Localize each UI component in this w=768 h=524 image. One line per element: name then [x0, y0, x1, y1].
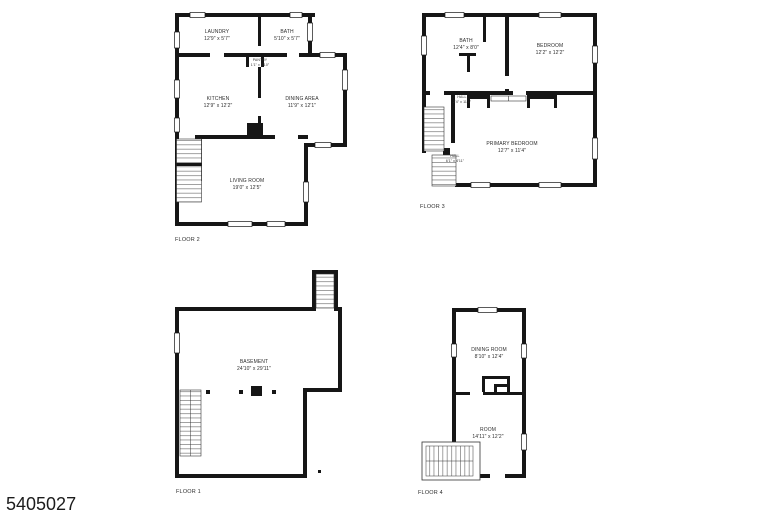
room-name: BATH: [453, 38, 479, 45]
room-dims: 12'9" x 5'7": [204, 36, 230, 43]
room-label-living-room: LIVING ROOM 19'0" x 12'5": [230, 178, 264, 192]
room-dims: 11'9" x 12'1": [285, 103, 318, 110]
floor-2-caption: FLOOR 2: [175, 237, 200, 243]
room-label-bedroom: BEDROOM 12'2" x 12'2": [536, 43, 565, 57]
room-label-bath: BATH 12'4" x 8'0": [453, 38, 479, 52]
floor-3-drawing: [418, 8, 603, 213]
room-label-kitchen: KITCHEN 12'9" x 12'2": [204, 96, 233, 110]
stairs: [177, 139, 202, 202]
room-dims: 6'1" x 4'11": [446, 159, 464, 164]
room-dims: 24'10" x 29'11": [237, 366, 271, 373]
room-label-dining-room: DINING ROOM 8'10" x 12'4": [471, 347, 507, 361]
room-name: DINING ROOM: [471, 347, 507, 354]
room-label-hall-upper: HALL 2'4" x 11'1": [453, 95, 471, 104]
room-dims: 1'1" x 1'10": [251, 63, 269, 68]
room-dims: 5'10" x 5'7": [274, 36, 300, 43]
listing-id: 5405027: [6, 494, 76, 515]
room-label-hall-lower: HALL 6'1" x 4'11": [446, 154, 464, 163]
room-dims: 12'7" x 11'4": [486, 148, 537, 155]
room-name: PANTRY: [251, 58, 269, 63]
room-name: ROOM: [472, 427, 503, 434]
room-label-basement: BASEMENT 24'10" x 29'11": [237, 359, 271, 373]
room-label-bath: BATH 5'10" x 5'7": [274, 29, 300, 43]
room-dims: 2'4" x 11'1": [453, 100, 471, 105]
floor-4-drawing: [416, 288, 561, 503]
room-name: KITCHEN: [204, 96, 233, 103]
room-dims: 19'0" x 12'5": [230, 185, 264, 192]
room-name: LIVING ROOM: [230, 178, 264, 185]
room-name: LAUNDRY: [204, 29, 230, 36]
room-dims: 12'9" x 12'2": [204, 103, 233, 110]
room-name: BASEMENT: [237, 359, 271, 366]
floor-1-drawing: [168, 268, 353, 503]
room-dims: 12'4" x 8'0": [453, 45, 479, 52]
room-label-dining-area: DINING AREA 11'9" x 12'1": [285, 96, 318, 110]
room-dims: 12'2" x 12'2": [536, 50, 565, 57]
room-label-room: ROOM 14'11" x 12'2": [472, 427, 503, 441]
floor-3-caption: FLOOR 3: [420, 204, 445, 210]
room-label-pantry: PANTRY 1'1" x 1'10": [251, 58, 269, 67]
floor-1-caption: FLOOR 1: [176, 489, 201, 495]
room-label-laundry: LAUNDRY 12'9" x 5'7": [204, 29, 230, 43]
floor-2-drawing: [170, 8, 355, 253]
floor-4-plan: DINING ROOM 8'10" x 12'4" ROOM 14'11" x …: [416, 288, 561, 503]
floor-1-plan: BASEMENT 24'10" x 29'11" FLOOR 1: [168, 268, 353, 503]
floor-3-plan: BATH 12'4" x 8'0" BEDROOM 12'2" x 12'2" …: [418, 8, 603, 213]
room-name: PRIMARY BEDROOM: [486, 141, 537, 148]
floor-2-plan: LAUNDRY 12'9" x 5'7" BATH 5'10" x 5'7" P…: [170, 8, 355, 253]
room-name: BEDROOM: [536, 43, 565, 50]
room-name: DINING AREA: [285, 96, 318, 103]
stairs: [422, 442, 480, 480]
floor-4-caption: FLOOR 4: [418, 490, 443, 496]
room-dims: 14'11" x 12'2": [472, 434, 503, 441]
floorplan-sheet: LAUNDRY 12'9" x 5'7" BATH 5'10" x 5'7" P…: [0, 0, 768, 524]
windows: [175, 333, 180, 353]
room-label-primary-bedroom: PRIMARY BEDROOM 12'7" x 11'4": [486, 141, 537, 155]
room-dims: 8'10" x 12'4": [471, 354, 507, 361]
closet-doors: [491, 96, 526, 101]
room-name: BATH: [274, 29, 300, 36]
